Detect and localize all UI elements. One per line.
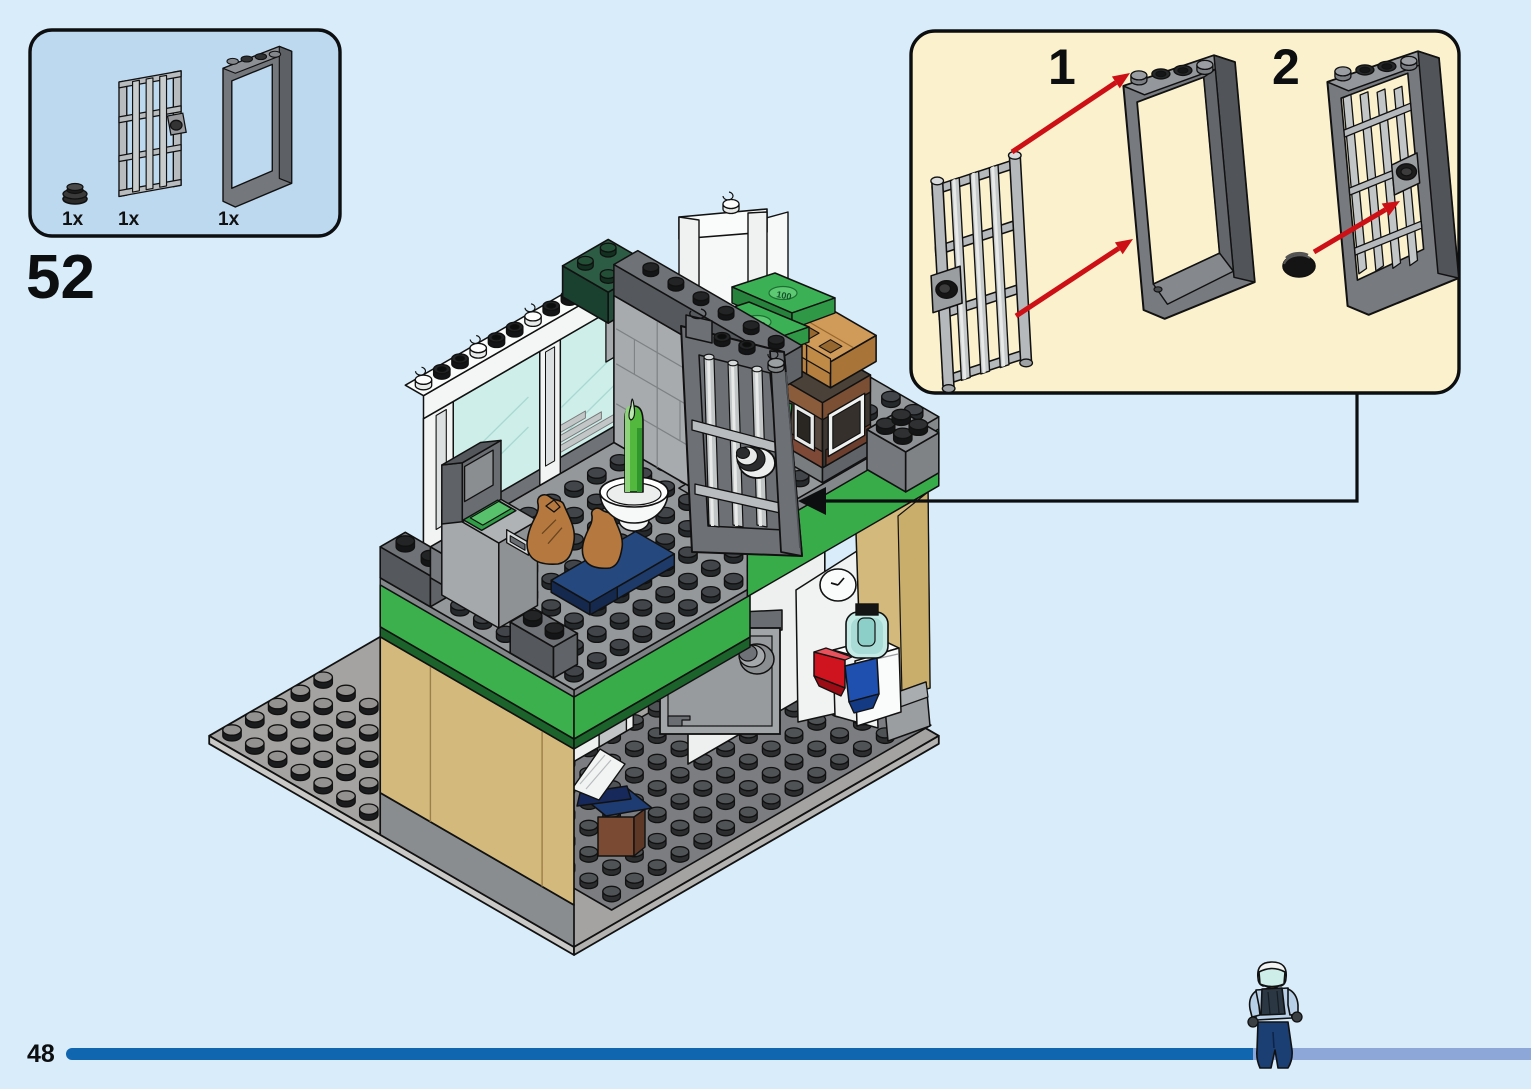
svg-text:1x: 1x (218, 209, 240, 230)
svg-text:48: 48 (27, 1040, 55, 1068)
svg-text:52: 52 (26, 243, 95, 312)
svg-text:1x: 1x (118, 209, 140, 230)
svg-text:1x: 1x (62, 209, 84, 230)
svg-text:1: 1 (1048, 39, 1076, 95)
svg-text:2: 2 (1272, 39, 1300, 95)
